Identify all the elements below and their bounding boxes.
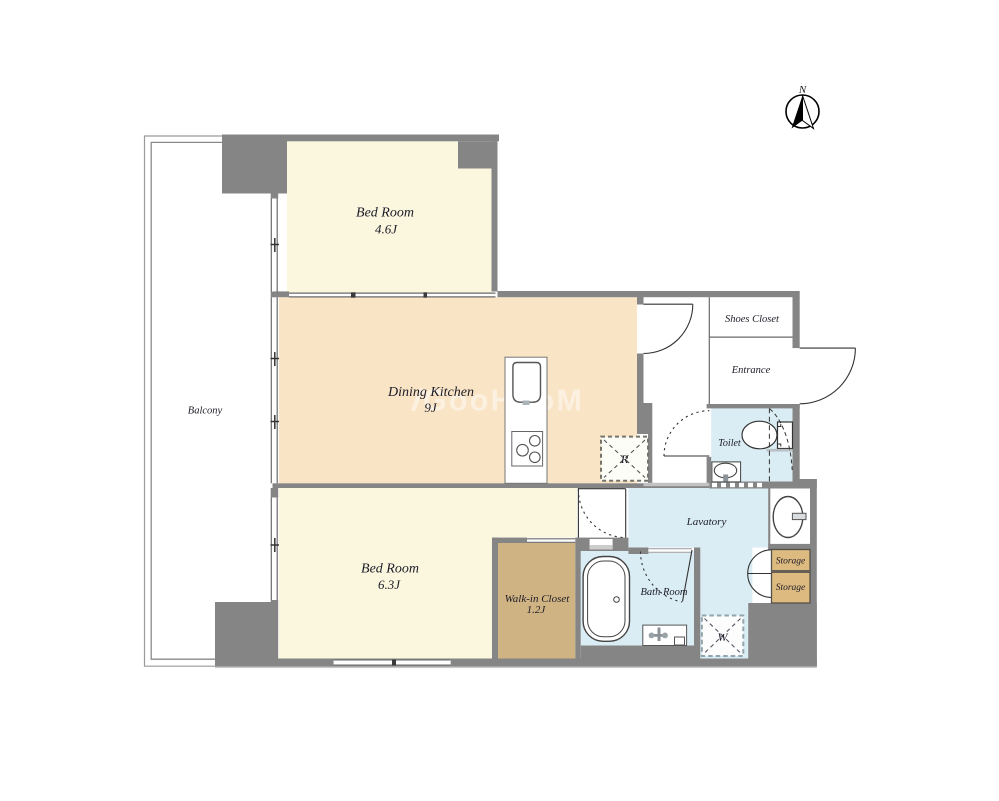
svg-text:Storage: Storage — [776, 557, 806, 567]
svg-text:Shoes Closet: Shoes Closet — [725, 314, 780, 325]
svg-text:Dining Kitchen: Dining Kitchen — [387, 385, 474, 400]
svg-text:Bed Room: Bed Room — [356, 206, 414, 221]
svg-text:Storage: Storage — [776, 583, 806, 593]
svg-text:Balcony: Balcony — [188, 406, 223, 417]
svg-text:Lavatory: Lavatory — [686, 516, 727, 528]
svg-text:W: W — [718, 630, 729, 644]
svg-text:4.6J: 4.6J — [375, 222, 398, 237]
svg-text:Entrance: Entrance — [731, 365, 771, 376]
svg-text:6.3J: 6.3J — [378, 577, 401, 592]
svg-text:1.2J: 1.2J — [527, 604, 547, 616]
svg-text:Bed Room: Bed Room — [361, 562, 419, 577]
svg-text:Toilet: Toilet — [718, 438, 741, 449]
svg-text:N: N — [798, 84, 807, 96]
svg-text:9J: 9J — [424, 400, 438, 415]
svg-text:R: R — [620, 452, 629, 466]
svg-text:Bath Room: Bath Room — [641, 587, 688, 598]
